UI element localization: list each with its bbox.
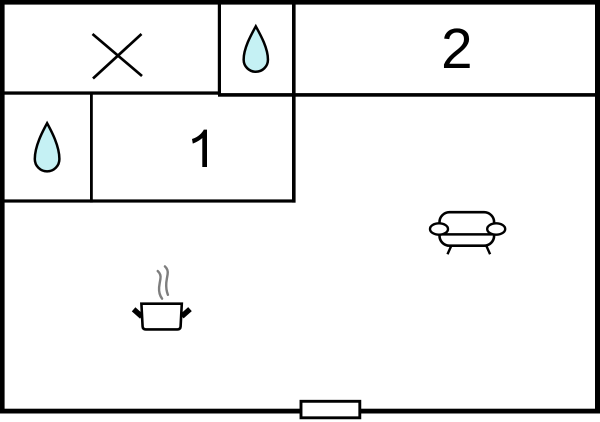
- svg-text:2: 2: [441, 17, 472, 80]
